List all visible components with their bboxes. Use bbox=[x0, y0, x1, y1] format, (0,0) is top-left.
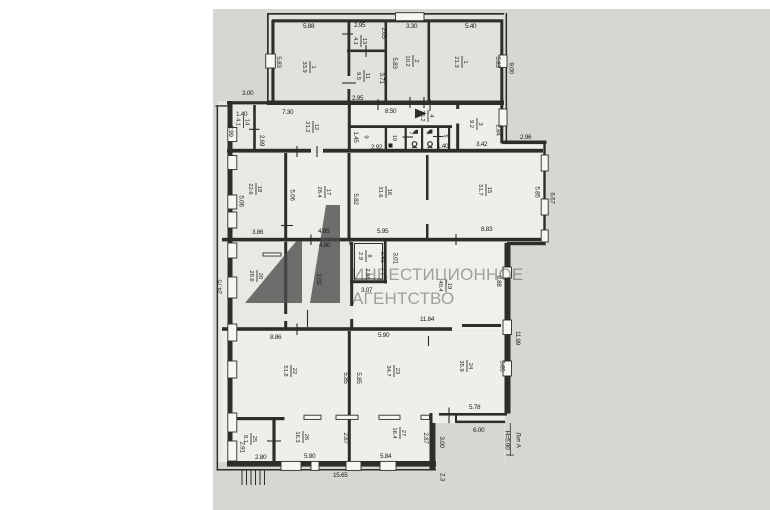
svg-text:2.02: 2.02 bbox=[315, 273, 322, 285]
svg-text:9.00: 9.00 bbox=[508, 62, 515, 74]
svg-text:3.42: 3.42 bbox=[476, 141, 488, 148]
svg-text:2.92: 2.92 bbox=[371, 144, 383, 151]
svg-text:2.95: 2.95 bbox=[352, 95, 364, 102]
svg-text:1.40: 1.40 bbox=[437, 143, 449, 150]
svg-text:1: 1 bbox=[462, 60, 468, 63]
svg-text:31.6: 31.6 bbox=[377, 186, 383, 197]
svg-text:5.88: 5.88 bbox=[303, 23, 315, 30]
svg-text:25: 25 bbox=[251, 436, 257, 442]
svg-text:Лит А: Лит А bbox=[515, 432, 522, 448]
svg-text:5.82: 5.82 bbox=[352, 193, 359, 205]
svg-text:2.3: 2.3 bbox=[439, 473, 446, 482]
svg-text:28.4: 28.4 bbox=[316, 186, 322, 198]
svg-text:3.01: 3.01 bbox=[392, 252, 399, 264]
svg-text:5.84: 5.84 bbox=[380, 453, 392, 460]
svg-text:51.7: 51.7 bbox=[477, 184, 483, 195]
svg-text:5.83: 5.83 bbox=[391, 57, 398, 69]
svg-text:5.95: 5.95 bbox=[377, 228, 389, 235]
svg-text:22: 22 bbox=[291, 368, 297, 374]
svg-text:18: 18 bbox=[256, 186, 262, 192]
svg-text:26: 26 bbox=[303, 434, 309, 440]
svg-text:2.96: 2.96 bbox=[520, 134, 532, 141]
svg-text:9.88: 9.88 bbox=[495, 275, 502, 287]
svg-text:8: 8 bbox=[366, 254, 372, 257]
svg-text:7.30: 7.30 bbox=[282, 109, 294, 116]
svg-text:15.65: 15.65 bbox=[333, 472, 348, 479]
svg-text:11.99: 11.99 bbox=[514, 331, 521, 346]
svg-text:22.6: 22.6 bbox=[247, 183, 253, 194]
svg-text:2.9: 2.9 bbox=[357, 252, 363, 260]
svg-text:7: 7 bbox=[408, 131, 414, 134]
svg-text:34.7: 34.7 bbox=[385, 365, 391, 376]
svg-text:2.91: 2.91 bbox=[239, 441, 246, 453]
svg-text:4.80: 4.80 bbox=[319, 242, 331, 249]
svg-text:28.6: 28.6 bbox=[248, 270, 254, 281]
svg-text:40.4: 40.4 bbox=[437, 280, 443, 292]
svg-text:23: 23 bbox=[394, 368, 400, 374]
svg-text:35.9: 35.9 bbox=[458, 360, 464, 371]
svg-text:11.84: 11.84 bbox=[420, 316, 435, 323]
svg-text:6.67: 6.67 bbox=[549, 192, 556, 204]
svg-text:16.4: 16.4 bbox=[391, 427, 397, 439]
svg-text:19: 19 bbox=[446, 283, 452, 289]
svg-text:5.83: 5.83 bbox=[275, 56, 282, 68]
svg-text:8.83: 8.83 bbox=[481, 226, 493, 233]
svg-text:8.50: 8.50 bbox=[385, 108, 397, 115]
svg-text:5.90: 5.90 bbox=[378, 332, 390, 339]
svg-text:9: 9 bbox=[363, 135, 369, 138]
svg-text:21.2: 21.2 bbox=[304, 121, 310, 132]
svg-text:2.99: 2.99 bbox=[227, 125, 234, 137]
svg-text:1.45: 1.45 bbox=[352, 131, 359, 143]
svg-text:3.00: 3.00 bbox=[438, 436, 445, 448]
svg-text:1: 1 bbox=[310, 65, 316, 68]
svg-text:5.83: 5.83 bbox=[494, 56, 501, 68]
svg-text:8.1: 8.1 bbox=[242, 435, 248, 443]
svg-text:33.9: 33.9 bbox=[301, 61, 307, 72]
svg-text:2.84: 2.84 bbox=[495, 124, 502, 136]
svg-text:5.06: 5.06 bbox=[238, 195, 245, 207]
svg-text:24.75: 24.75 bbox=[217, 279, 224, 294]
svg-text:2.87: 2.87 bbox=[342, 432, 349, 444]
svg-text:5.78: 5.78 bbox=[469, 404, 481, 411]
svg-text:27: 27 bbox=[400, 430, 406, 436]
svg-text:9.5: 9.5 bbox=[355, 72, 361, 80]
svg-text:4.1: 4.1 bbox=[235, 118, 241, 126]
svg-text:14: 14 bbox=[244, 119, 250, 126]
svg-text:11: 11 bbox=[364, 73, 370, 79]
svg-text:3.71: 3.71 bbox=[378, 72, 385, 84]
svg-text:17: 17 bbox=[325, 189, 331, 195]
svg-text:2.05: 2.05 bbox=[380, 27, 387, 39]
svg-text:3: 3 bbox=[477, 122, 483, 125]
svg-text:2.69: 2.69 bbox=[258, 135, 265, 147]
svg-text:8.86: 8.86 bbox=[270, 334, 282, 341]
svg-text:15: 15 bbox=[486, 187, 492, 193]
svg-text:5: 5 bbox=[442, 134, 448, 137]
svg-text:5.85: 5.85 bbox=[342, 372, 349, 384]
svg-text:3.00: 3.00 bbox=[242, 90, 254, 97]
svg-text:24: 24 bbox=[467, 363, 473, 370]
svg-text:15.2: 15.2 bbox=[419, 110, 425, 121]
svg-text:9.2: 9.2 bbox=[468, 120, 474, 128]
svg-text:10: 10 bbox=[391, 135, 397, 141]
svg-text:3.86: 3.86 bbox=[252, 229, 264, 236]
svg-text:4.85: 4.85 bbox=[318, 228, 330, 235]
svg-text:51.8: 51.8 bbox=[282, 365, 288, 376]
svg-text:13: 13 bbox=[361, 38, 367, 44]
svg-text:10.2: 10.2 bbox=[404, 55, 410, 66]
svg-text:3.07: 3.07 bbox=[361, 287, 373, 294]
svg-text:6.00: 6.00 bbox=[473, 427, 485, 434]
svg-text:16.3: 16.3 bbox=[294, 431, 300, 442]
svg-text:4.1: 4.1 bbox=[352, 37, 358, 45]
svg-text:5.40: 5.40 bbox=[465, 23, 477, 30]
svg-text:6: 6 bbox=[425, 131, 431, 134]
svg-text:5.85: 5.85 bbox=[534, 186, 541, 198]
svg-text:2.95: 2.95 bbox=[354, 22, 366, 29]
svg-text:2.82: 2.82 bbox=[380, 251, 387, 263]
svg-text:Н=5.90: Н=5.90 bbox=[504, 431, 511, 451]
svg-text:5.85: 5.85 bbox=[355, 372, 362, 384]
svg-text:5.06: 5.06 bbox=[289, 189, 296, 201]
svg-text:16: 16 bbox=[386, 189, 392, 195]
svg-text:1.40: 1.40 bbox=[236, 111, 248, 118]
svg-text:5.85: 5.85 bbox=[499, 360, 506, 372]
svg-text:21.3: 21.3 bbox=[453, 56, 459, 67]
svg-text:2.80: 2.80 bbox=[255, 454, 267, 461]
svg-text:2: 2 bbox=[413, 59, 419, 62]
svg-text:2.98: 2.98 bbox=[364, 268, 370, 279]
svg-text:5.90: 5.90 bbox=[304, 453, 316, 460]
svg-text:3.30: 3.30 bbox=[406, 23, 418, 30]
svg-text:12: 12 bbox=[313, 124, 319, 130]
svg-text:20: 20 bbox=[257, 273, 263, 279]
svg-text:2.87: 2.87 bbox=[422, 432, 429, 444]
